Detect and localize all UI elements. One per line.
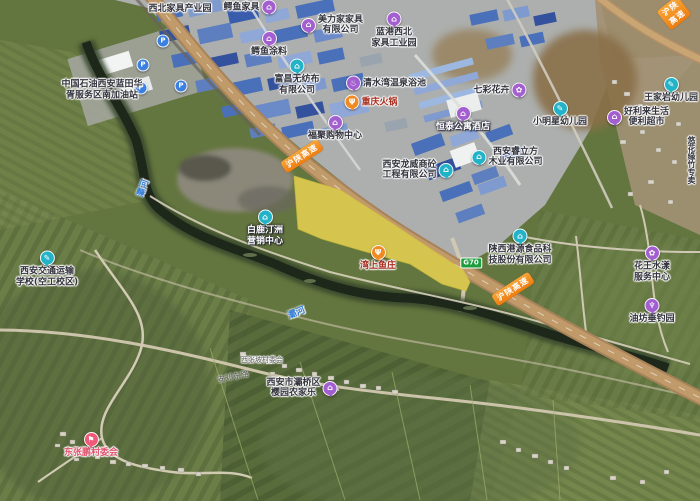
poi-label: 便利超市: [628, 117, 664, 127]
poi-qingshuiwan-bath[interactable]: ♨ 清水湾温泉浴池: [346, 76, 426, 91]
village-committee-icon: ⚑: [83, 432, 98, 447]
poi-label: 家具工业园: [371, 39, 416, 49]
kindergarten-icon: ✎: [552, 101, 567, 116]
sales-center-icon: ⌂: [257, 210, 272, 225]
hot-spring-icon: ♨: [346, 76, 361, 91]
poi-yingyuan-farmstay[interactable]: 西安市灞桥区 樱园农家乐 ⌂: [266, 378, 337, 398]
poi-label: 技股份有限公司: [488, 256, 551, 266]
poi-eyu-furniture[interactable]: 鳄鱼家具 ⌂: [223, 0, 276, 15]
mall-icon: ⌂: [327, 115, 342, 130]
poi-fuchang-nonwoven[interactable]: ⌂ 富昌无纺布 有限公司: [274, 59, 319, 96]
poi-dongzhangpeng-committee[interactable]: ⚑ 东张鹏村委会: [64, 432, 118, 458]
poi-hengtai-hotel[interactable]: ⌂ 恒泰公寓酒店: [436, 106, 490, 132]
poi-gangyuan-food[interactable]: ⌂ 陕西港源食品科 技股份有限公司: [488, 229, 551, 266]
poi-label: 服务中心: [634, 273, 670, 283]
poi-label: 西安龙威商砼: [382, 160, 436, 170]
poi-eyu-paint[interactable]: ⌂ 鳄鱼涂料: [251, 31, 287, 57]
poi-label: 工程有限公司: [382, 170, 436, 180]
poi-label: 有限公司: [322, 25, 358, 35]
restaurant-icon: Ψ: [344, 95, 359, 110]
poi-bailutingzhou-center[interactable]: ⌂ 白鹿汀洲 营销中心: [247, 210, 283, 247]
restaurant-icon: Ψ: [370, 245, 385, 260]
poi-label: 西北家具产业园: [148, 4, 211, 14]
poi-label: 营销中心: [247, 237, 283, 247]
poi-wangjiayan-kindergarten[interactable]: ✎ 王家岩幼儿园: [644, 77, 698, 103]
poi-label: 木业有限公司: [488, 157, 542, 167]
industrial-park-icon: ⌂: [386, 12, 401, 27]
poi-youfang-fishing[interactable]: ♆ 油坊垂钓园: [629, 298, 674, 324]
poi-longwei-engineering[interactable]: 西安龙威商砼 工程有限公司 ⌂: [382, 160, 453, 180]
company-icon: ⌂: [439, 163, 454, 178]
hotel-icon: ⌂: [455, 106, 470, 121]
poi-label: 樱园农家乐: [271, 388, 316, 398]
poi-ruilifang-wood[interactable]: ⌂ 西安睿立方 木业有限公司: [471, 147, 542, 167]
poi-xibei-furniture-park[interactable]: 西北家具产业园: [148, 4, 211, 14]
poi-youhuayuan-bamboo[interactable]: 悠花缘竹专卖: [686, 136, 696, 184]
poi-meilijia-furniture[interactable]: ⌂ 美力家家具 有限公司: [301, 15, 363, 35]
poi-langang-furniture-park[interactable]: ⌂ 蓝港西北 家具工业园: [371, 12, 416, 49]
poi-label: 鳄鱼家具: [223, 2, 259, 12]
parking-icon[interactable]: P: [157, 35, 170, 48]
poi-chongqing-hotpot[interactable]: Ψ 重庆火锅: [344, 95, 397, 110]
poi-label: 学校(空工校区): [16, 278, 78, 288]
poi-label: 重庆火锅: [361, 97, 397, 107]
furniture-company-icon: ⌂: [301, 18, 316, 33]
poi-haolilai-store[interactable]: ⌂ 好利来生活 便利超市: [607, 107, 669, 127]
parking-icon[interactable]: P: [137, 59, 150, 72]
poi-label: 西安睿立方: [493, 147, 538, 157]
paint-company-icon: ⌂: [261, 31, 276, 46]
service-center-icon: ✿: [644, 246, 659, 261]
poi-xizhangpo-committee[interactable]: 西张坡村委会: [241, 355, 283, 365]
company-icon: ⌂: [512, 229, 527, 244]
poi-label: 清水湾温泉浴池: [363, 78, 426, 88]
poi-label: 美力家家具: [318, 15, 363, 25]
poi-qicai-flowers[interactable]: 七彩花卉 ✿: [473, 83, 526, 98]
convenience-store-icon: ⌂: [607, 110, 622, 125]
poi-petrochina-gas[interactable]: 中国石油西安蓝田华 胥服务区南加油站: [61, 80, 142, 101]
school-icon: ✎: [39, 251, 54, 266]
company-icon: ⌂: [471, 150, 486, 165]
flower-shop-icon: ✿: [512, 83, 527, 98]
fishing-park-icon: ♆: [644, 298, 659, 313]
kindergarten-icon: ✎: [663, 77, 678, 92]
parking-icon[interactable]: P: [175, 80, 188, 93]
furniture-store-icon: ⌂: [262, 0, 277, 15]
poi-label: 好利来生活: [624, 107, 669, 117]
poi-label: 胥服务区南加油站: [66, 91, 138, 101]
poi-label: 中国石油西安蓝田华: [61, 80, 142, 90]
satellite-map[interactable]: 沪陕高速 沪陕高速 沪陕高速 G70 灞河 灞河 安邓东路 P P P P 西北…: [0, 0, 700, 501]
poi-label: 有限公司: [279, 86, 315, 96]
poi-wanshang-fish[interactable]: Ψ 湾上鱼庄: [360, 245, 396, 271]
poi-label: 西安市灞桥区: [266, 378, 320, 388]
poi-fuju-mall[interactable]: ⌂ 福聚购物中心: [308, 115, 362, 141]
poi-label: 西张坡村委会: [241, 355, 283, 365]
poi-xiaomingxing-kindergarten[interactable]: ✎ 小明星幼儿园: [533, 101, 587, 127]
factory-icon: ⌂: [289, 59, 304, 74]
poi-label: 七彩花卉: [473, 85, 509, 95]
poi-jiaotong-school[interactable]: ✎ 西安交通运输 学校(空工校区): [16, 251, 78, 288]
expressway-shield: G70: [460, 258, 482, 269]
poi-huawang-service[interactable]: ✿ 花王水漾 服务中心: [634, 246, 670, 283]
farmstay-icon: ⌂: [323, 381, 338, 396]
poi-label: 悠花缘竹专卖: [686, 136, 696, 184]
